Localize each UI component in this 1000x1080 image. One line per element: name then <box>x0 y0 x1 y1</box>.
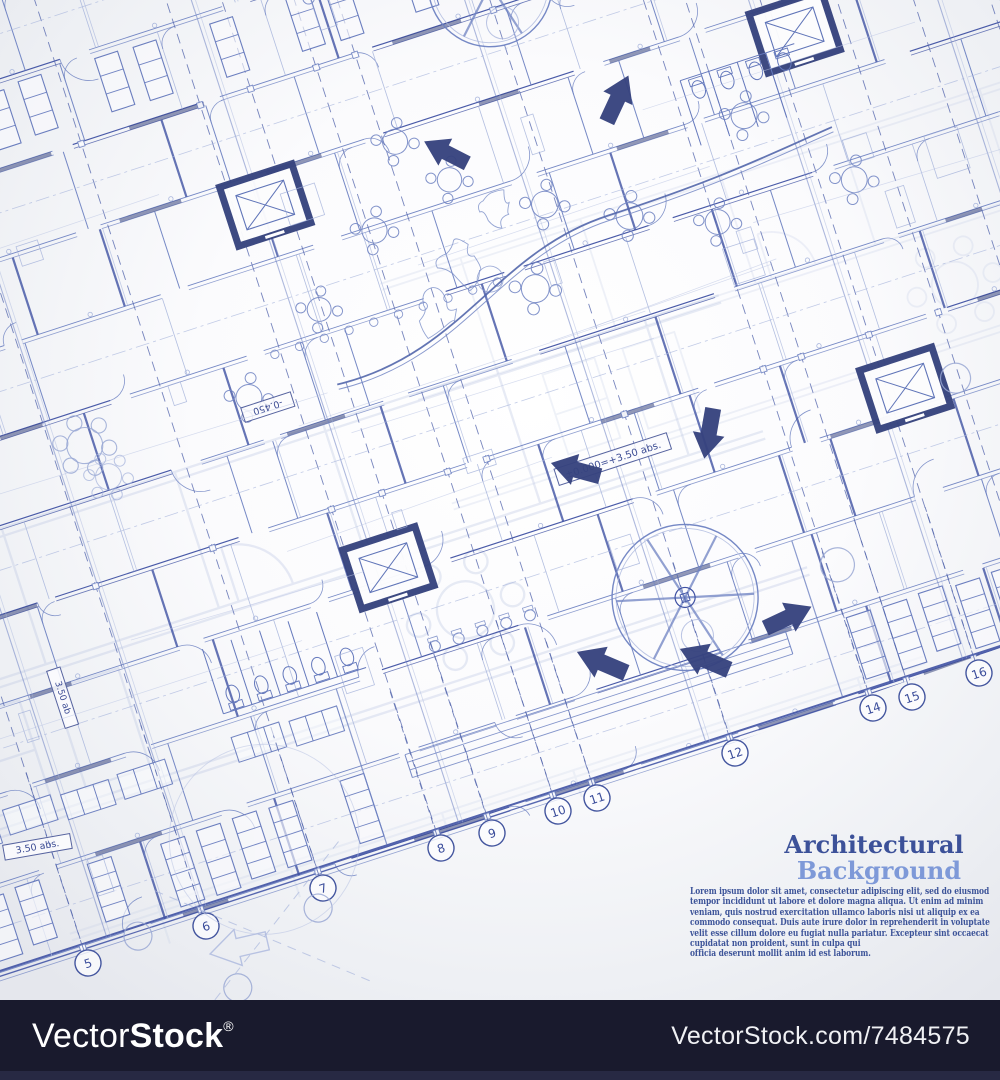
title-line-2: Background <box>745 858 1000 884</box>
lorem-paragraph: Lorem ipsum dolor sit amet, consectetur … <box>690 887 960 960</box>
stock-image-preview: ±0.000=+3.50 abs.-0.4503.50 abs.3.50 ab5… <box>0 0 1000 1080</box>
title-line-1: Architectural <box>740 831 1000 858</box>
logo-stock-text: Stock <box>130 1017 224 1055</box>
vectorstock-url: VectorStock.com/7484575 <box>671 1022 970 1051</box>
caption-title: Architectural Background <box>740 831 1000 884</box>
vectorstock-logo: VectorStock® <box>32 1017 234 1056</box>
registered-mark-icon: ® <box>223 1018 234 1034</box>
watermark-bar: VectorStock® VectorStock.com/7484575 <box>0 1000 1000 1080</box>
logo-vector-text: Vector <box>32 1017 130 1055</box>
paragraph-line: officia deserunt mollit anim id est labo… <box>690 949 960 959</box>
